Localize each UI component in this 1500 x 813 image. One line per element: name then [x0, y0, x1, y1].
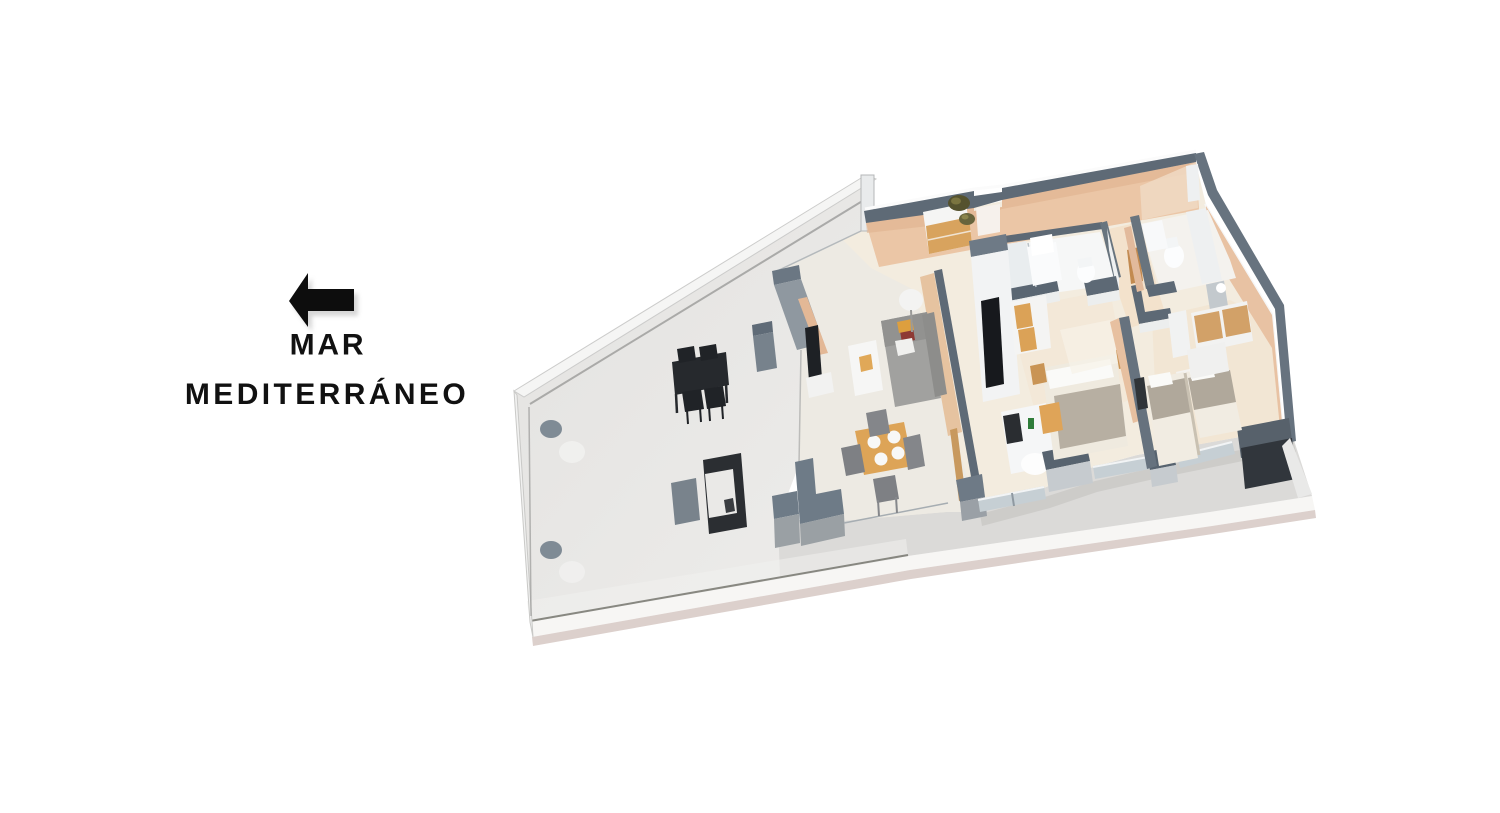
- svg-text:MEDITERRÁNEO: MEDITERRÁNEO: [185, 377, 469, 411]
- svg-text:MAR: MAR: [290, 329, 367, 362]
